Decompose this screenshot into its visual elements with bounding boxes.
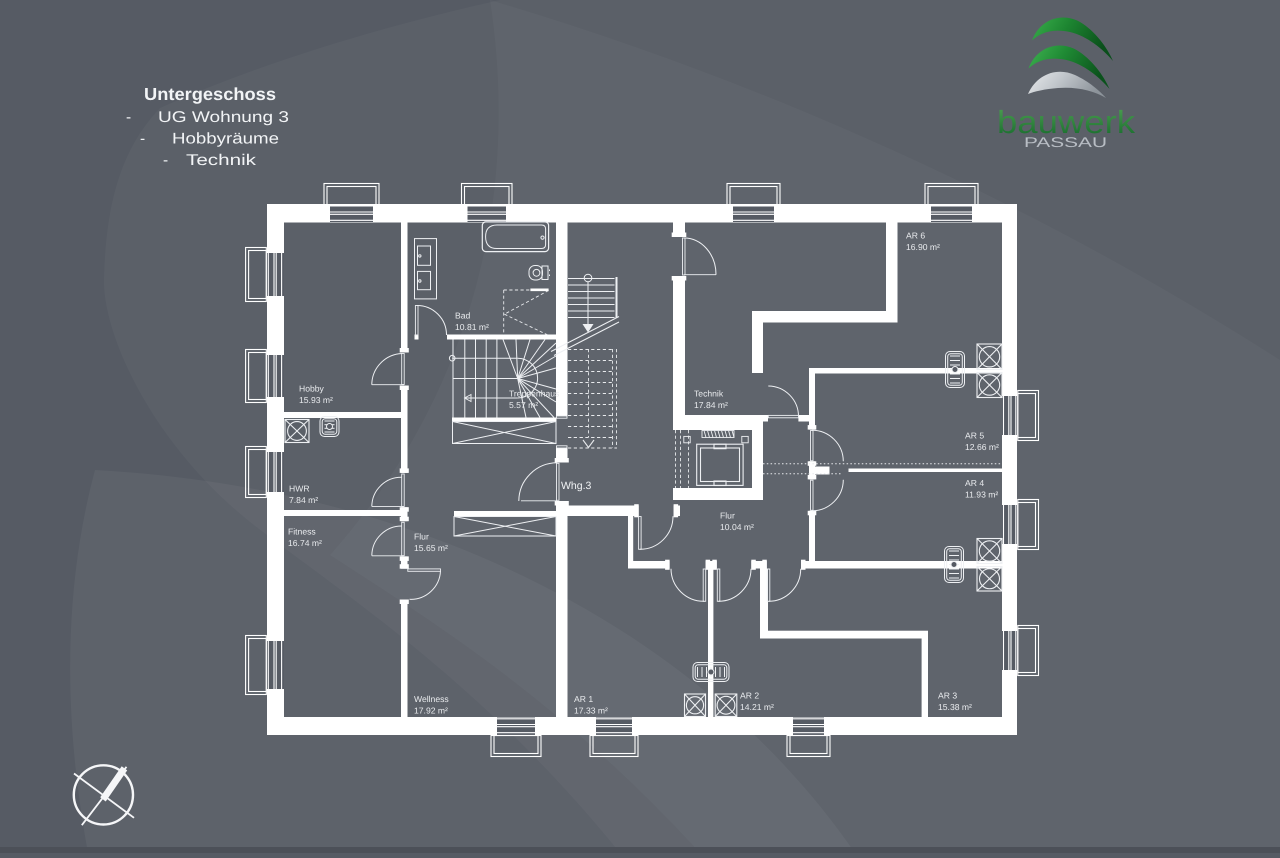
svg-text:Technik: Technik bbox=[694, 389, 724, 399]
svg-text:Flur: Flur bbox=[414, 532, 429, 542]
svg-text:Treppenhaus: Treppenhaus bbox=[509, 389, 559, 399]
svg-text:Whg.3: Whg.3 bbox=[561, 480, 592, 492]
svg-text:11.93 m²: 11.93 m² bbox=[965, 490, 998, 500]
svg-text:15.38 m²: 15.38 m² bbox=[938, 702, 972, 712]
svg-text:AR 6: AR 6 bbox=[906, 231, 925, 241]
svg-text:HWR: HWR bbox=[289, 484, 310, 494]
svg-text:5.57 m²: 5.57 m² bbox=[509, 400, 538, 410]
svg-text:Flur: Flur bbox=[720, 511, 735, 521]
svg-text:14.21 m²: 14.21 m² bbox=[740, 702, 774, 712]
svg-text:16.74 m²: 16.74 m² bbox=[288, 538, 322, 548]
svg-text:16.90 m²: 16.90 m² bbox=[906, 242, 940, 252]
svg-text:Hobbyräume: Hobbyräume bbox=[172, 131, 279, 148]
svg-text:-: - bbox=[163, 152, 168, 169]
svg-text:AR 1: AR 1 bbox=[574, 694, 593, 704]
svg-text:Fitness: Fitness bbox=[288, 527, 316, 537]
svg-text:12.66 m²: 12.66 m² bbox=[965, 442, 999, 452]
svg-text:17.92 m²: 17.92 m² bbox=[414, 706, 448, 716]
svg-text:AR 3: AR 3 bbox=[938, 691, 957, 701]
svg-text:15.93 m²: 15.93 m² bbox=[299, 395, 333, 405]
svg-text:-: - bbox=[126, 109, 131, 126]
svg-text:Bad: Bad bbox=[455, 311, 471, 321]
svg-text:Hobby: Hobby bbox=[299, 384, 325, 394]
svg-text:AR 4: AR 4 bbox=[965, 478, 984, 488]
svg-text:10.81 m²: 10.81 m² bbox=[455, 322, 489, 332]
svg-text:AR 5: AR 5 bbox=[965, 431, 984, 441]
svg-text:7.84 m²: 7.84 m² bbox=[289, 495, 318, 505]
svg-text:PASSAU: PASSAU bbox=[1024, 134, 1107, 150]
svg-text:Technik: Technik bbox=[186, 152, 256, 169]
svg-text:Wellness: Wellness bbox=[414, 694, 449, 704]
svg-text:10.04 m²: 10.04 m² bbox=[720, 522, 754, 532]
svg-text:-: - bbox=[140, 131, 145, 148]
svg-text:17.33 m²: 17.33 m² bbox=[574, 706, 608, 716]
svg-text:UG Wohnung 3: UG Wohnung 3 bbox=[158, 109, 289, 126]
svg-text:17.84 m²: 17.84 m² bbox=[694, 400, 728, 410]
svg-text:AR 2: AR 2 bbox=[740, 691, 759, 701]
svg-text:Untergeschoss: Untergeschoss bbox=[144, 84, 276, 104]
svg-text:15.65 m²: 15.65 m² bbox=[414, 543, 448, 553]
